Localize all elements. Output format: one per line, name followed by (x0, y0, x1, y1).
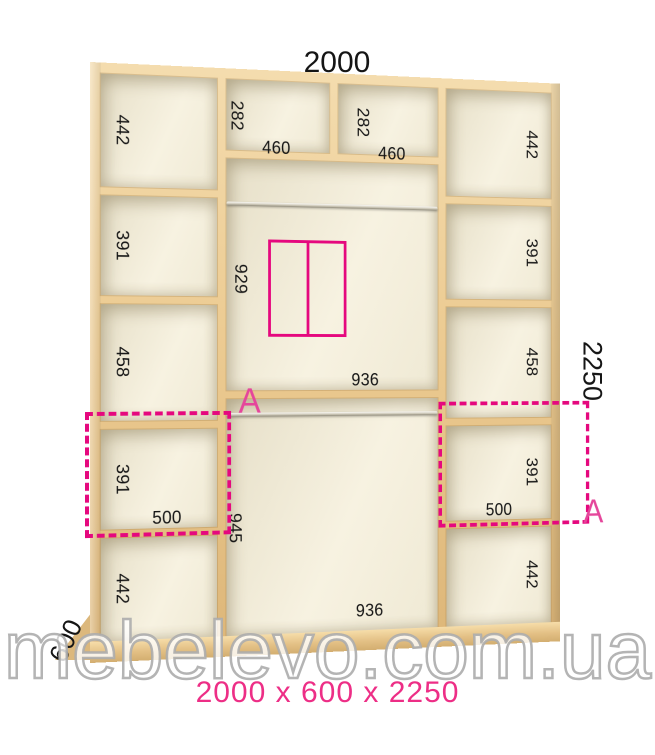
overall-height-label: 2250 (577, 341, 608, 401)
section-a-dashed-outline-left (85, 411, 231, 538)
dim-label: 442 (112, 573, 132, 604)
dim-label: 929 (231, 264, 251, 294)
dim-label: 458 (522, 348, 540, 377)
left-wall-edge (90, 62, 101, 642)
section-a-marker-right: A (583, 492, 603, 531)
wardrobe-body: 442 391 458 391 442 500 442 391 458 391 … (90, 62, 560, 663)
section-a-dashed-outline-right (439, 401, 590, 528)
dim-label: 458 (112, 347, 132, 378)
dim-label: 282 (353, 107, 372, 137)
dim-label: 442 (522, 560, 540, 589)
cell-bottom-945 (226, 398, 437, 636)
sliding-doors-icon (268, 239, 346, 337)
dim-label: 442 (112, 114, 132, 146)
dim-label: 282 (227, 100, 247, 131)
dim-label: 442 (522, 130, 540, 159)
dim-label: 936 (351, 370, 379, 390)
dim-label: 936 (356, 600, 384, 621)
dim-label: 391 (522, 238, 540, 267)
door-divider-line (306, 243, 309, 334)
dim-label: 391 (112, 230, 132, 261)
wardrobe-dimension-diagram: 442 391 458 391 442 500 442 391 458 391 … (0, 0, 655, 755)
section-a-marker-left: A (239, 381, 261, 422)
dim-label: 460 (262, 138, 290, 159)
dim-label: 460 (378, 144, 405, 165)
dimensions-caption: 2000 x 600 x 2250 (0, 676, 655, 710)
right-wall-edge (551, 83, 560, 622)
overall-width-label: 2000 (237, 46, 437, 80)
